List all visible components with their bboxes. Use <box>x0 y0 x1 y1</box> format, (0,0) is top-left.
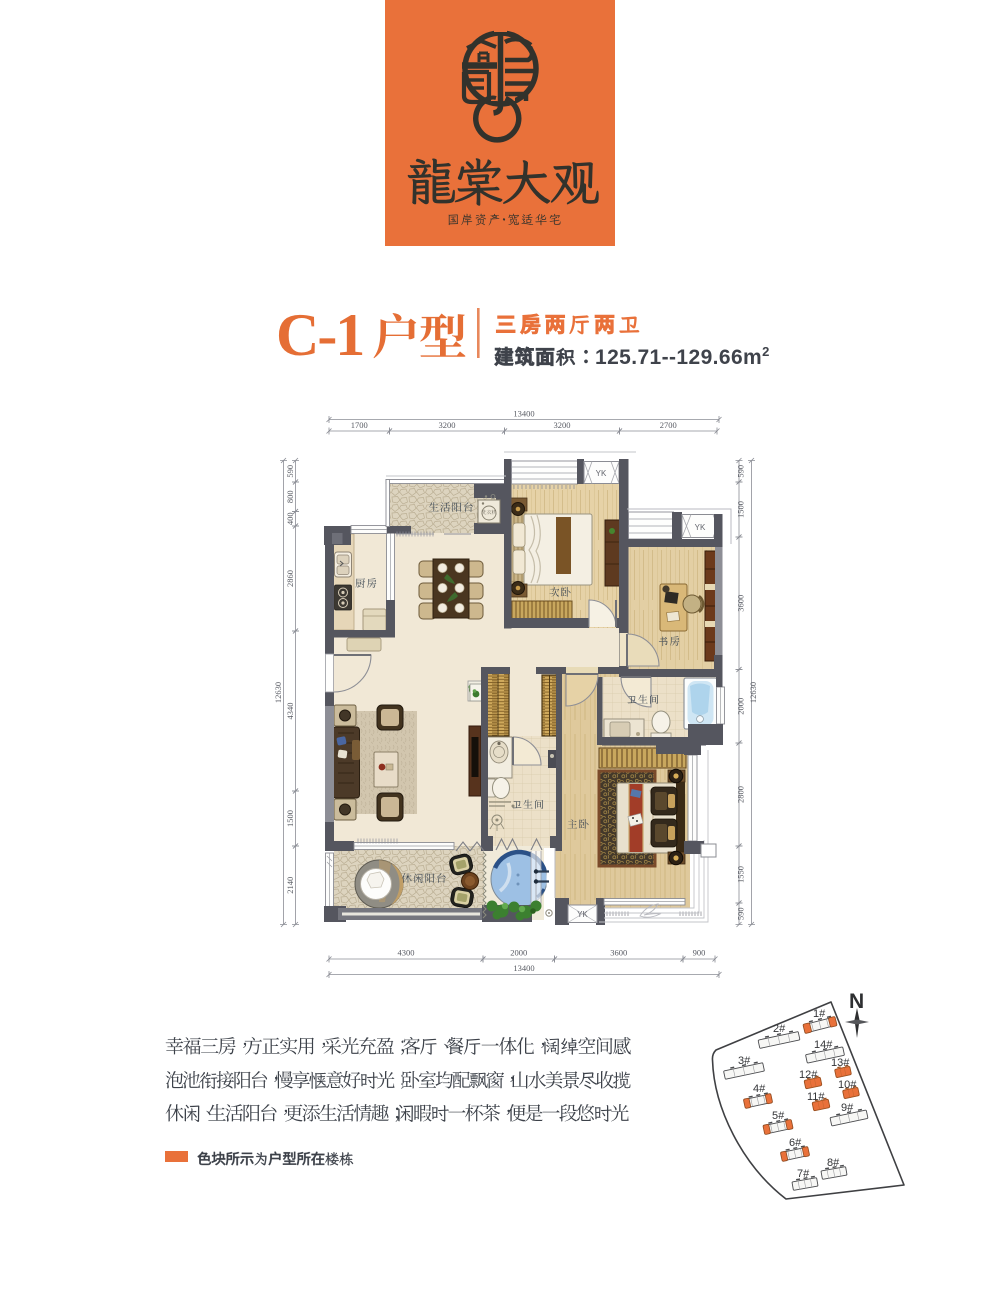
svg-text:2860: 2860 <box>285 570 295 587</box>
svg-text:1700: 1700 <box>351 420 368 430</box>
svg-text:13#: 13# <box>831 1057 850 1069</box>
svg-text:125.71--129.66m2: 125.71--129.66m2 <box>595 344 770 369</box>
svg-text:4340: 4340 <box>285 703 295 720</box>
svg-text:2000: 2000 <box>510 948 527 958</box>
svg-text:3600: 3600 <box>610 948 627 958</box>
svg-text:12630: 12630 <box>273 682 283 703</box>
svg-text:13400: 13400 <box>513 409 534 419</box>
svg-text:YK: YK <box>596 469 607 478</box>
svg-text:1#: 1# <box>813 1008 826 1020</box>
svg-text:N: N <box>849 990 864 1013</box>
svg-text:7#: 7# <box>797 1168 810 1180</box>
svg-text:1500: 1500 <box>736 501 746 518</box>
svg-text:C-1: C-1 <box>276 302 363 368</box>
svg-text:2#: 2# <box>773 1023 786 1035</box>
svg-text:3600: 3600 <box>736 595 746 612</box>
svg-text:13400: 13400 <box>513 963 534 973</box>
svg-text:590: 590 <box>285 465 295 478</box>
svg-text:3200: 3200 <box>554 420 571 430</box>
svg-text:2000: 2000 <box>736 698 746 715</box>
svg-text:900: 900 <box>693 948 706 958</box>
svg-text:YK: YK <box>577 910 588 919</box>
svg-text:4300: 4300 <box>398 948 415 958</box>
svg-text:1550: 1550 <box>736 866 746 883</box>
svg-text:12630: 12630 <box>748 682 758 703</box>
svg-text:11#: 11# <box>807 1091 825 1103</box>
svg-text:9#: 9# <box>841 1102 854 1114</box>
svg-text:2800: 2800 <box>736 786 746 803</box>
svg-text:400: 400 <box>285 512 295 525</box>
svg-text:3200: 3200 <box>439 420 456 430</box>
svg-text:12#: 12# <box>799 1069 818 1081</box>
svg-text:2140: 2140 <box>285 877 295 894</box>
svg-text:10#: 10# <box>838 1079 857 1091</box>
svg-text:2700: 2700 <box>660 420 677 430</box>
svg-text:3#: 3# <box>738 1055 751 1067</box>
svg-text:800: 800 <box>285 490 295 503</box>
svg-text:14#: 14# <box>814 1039 833 1051</box>
svg-text:6#: 6# <box>789 1137 802 1149</box>
svg-text:4#: 4# <box>753 1083 766 1095</box>
svg-text:590: 590 <box>736 907 746 920</box>
svg-text:YK: YK <box>695 523 706 532</box>
svg-text:8#: 8# <box>827 1157 840 1169</box>
svg-text:5#: 5# <box>772 1110 785 1122</box>
svg-text:1500: 1500 <box>285 810 295 827</box>
svg-text:590: 590 <box>736 465 746 478</box>
